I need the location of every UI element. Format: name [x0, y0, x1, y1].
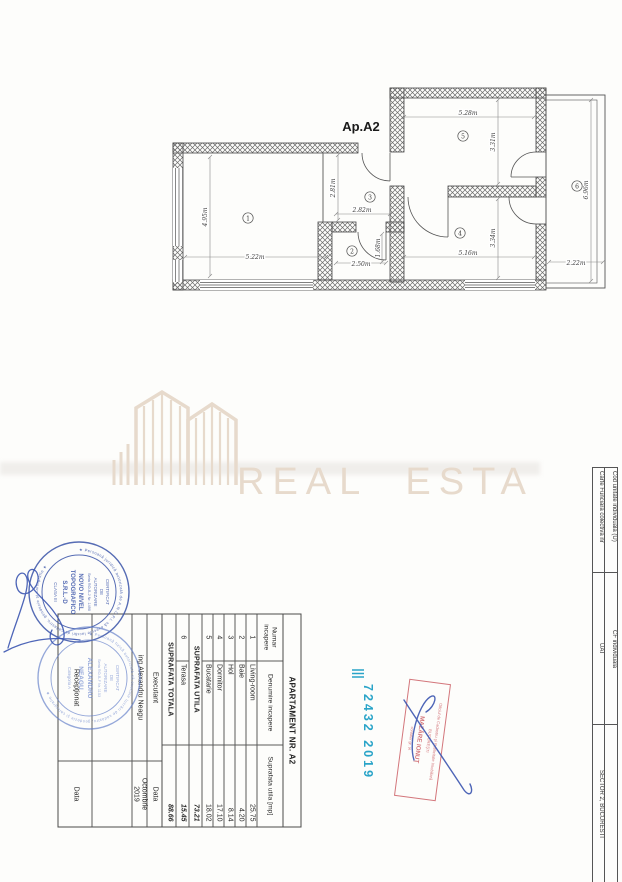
subtotal-row: SUPRAFATA UTILA 73.21 — [188, 614, 201, 826]
subtotal-value: 73.21 — [189, 745, 201, 826]
stamp2-line: AUTORIZARE — [103, 664, 108, 693]
table-row: 3 Hol 8.14 — [223, 614, 234, 826]
cell-area: 8.14 — [224, 745, 234, 826]
registration-prefix-mark — [352, 670, 364, 677]
cell-num: 4 — [213, 614, 223, 661]
table-title: APARTAMENT NR. A2 — [282, 614, 300, 826]
data-label: Data — [147, 761, 161, 826]
cadastral-sidebar: Carte Funciara colectiva nr UAT SECTOR 2… — [592, 467, 618, 882]
empty-sidebar-cell — [605, 725, 617, 882]
dim-dormitor-w: 5.16m — [458, 250, 477, 257]
sector-label: SECTOR 2, BUCURESTI — [593, 725, 604, 882]
col-header-suprafata: Suprafata utila [mp] — [257, 745, 282, 826]
stamp1-line: CERTIFICAT — [105, 579, 110, 605]
table-row: 4 Dormitor 17.10 — [212, 614, 223, 826]
total-label: SUPRAFATA TOTALA — [162, 614, 175, 745]
cell-name: Living-room — [246, 661, 256, 745]
room-4: 4 — [458, 231, 462, 238]
dim-hol-h: 2.81m — [330, 178, 337, 198]
stamp2-line: CERTIFICAT — [115, 665, 120, 691]
cell-num: 6 — [176, 614, 188, 661]
watermark-text: REAL ESTATE — [237, 461, 530, 503]
cell-name: Hol — [224, 661, 234, 745]
date-value: Octombrie 2019 — [131, 772, 147, 816]
apartment-label: Ap.A2 — [342, 119, 380, 134]
subtotal-label: SUPRAFATA UTILA — [189, 614, 201, 745]
red-office-stamp: Oficiul de Cadastru şi Publicitate Imobi… — [370, 655, 500, 835]
cell-area: 25.75 — [246, 745, 256, 826]
table-header-row: Numar incapere Denumire incapere Suprafa… — [256, 614, 282, 826]
cell-num: 1 — [246, 614, 256, 661]
dim-terasa-h: 6.96m — [583, 180, 590, 199]
cell-name: Dormitor — [213, 661, 223, 745]
table-row: 1 Living-room 25.75 — [245, 614, 256, 826]
dim-dormitor-h: 3.34m — [490, 228, 497, 247]
room-3: 3 — [368, 195, 372, 202]
cell-name: Bucatarie — [202, 661, 212, 745]
floor-plan: Ap.A2 — [0, 0, 622, 345]
room-6: 6 — [575, 184, 579, 191]
cell-area: 18.02 — [202, 745, 212, 826]
dim-living-w: 5.22m — [245, 254, 264, 261]
cell-num: 3 — [224, 614, 234, 661]
carte-funciara-label: Carte Funciara colectiva nr — [593, 468, 604, 573]
table-row: 5 Bucatarie 18.02 — [201, 614, 212, 826]
cell-area: 15.45 — [176, 745, 188, 826]
cell-name: Terasa — [176, 661, 188, 745]
stamp2-line: Categoria A — [67, 667, 72, 689]
sidebar-inner-column: Cod unitate individuala (U) CF individua… — [605, 468, 617, 882]
cell-area: 17.10 — [213, 745, 223, 826]
table-row: 2 Baie 4.20 — [234, 614, 245, 826]
col-header-numar: Numar incapere — [257, 614, 282, 661]
cell-num: 2 — [235, 614, 245, 661]
total-row: SUPRAFATA TOTALA 88.66 — [162, 614, 175, 826]
dim-baie-h: 1.68m — [375, 238, 382, 257]
apartment-table: APARTAMENT NR. A2 Numar incapere Denumir… — [161, 613, 301, 827]
dim-bucatarie-h: 3.31m — [490, 132, 497, 151]
realestate-watermark: REAL ESTATE — [100, 372, 530, 507]
building-logo-icon — [114, 392, 236, 485]
dim-baie-w: 2.50m — [350, 261, 370, 268]
terrace-row: 6 Terasa 15.45 — [175, 614, 188, 826]
dim-terasa-w: 2.22m — [565, 260, 585, 267]
dim-hol-w: 2.82m — [351, 207, 371, 214]
sidebar-outer-column: Carte Funciara colectiva nr UAT SECTOR 2… — [593, 468, 605, 882]
total-value: 88.66 — [162, 745, 175, 826]
stamp2-line: DE — [109, 675, 114, 681]
dim-bucatarie-w: 5.28m — [458, 110, 477, 117]
cell-area: 4.20 — [235, 745, 245, 826]
uat-label: UAT — [593, 573, 604, 726]
cell-name: Baie — [235, 661, 245, 745]
dim-living-h: 4.95m — [202, 207, 209, 227]
room-1: 1 — [246, 216, 250, 223]
cf-individuala-label: CF individuala — [605, 573, 617, 726]
room-2: 2 — [350, 249, 354, 256]
doors — [358, 152, 536, 260]
empty-cell — [92, 761, 131, 826]
stamp2-line: NEAGU — [77, 666, 84, 690]
col-header-denumire: Denumire incapere — [257, 661, 282, 745]
cell-num: 5 — [202, 614, 212, 661]
handwritten-signature — [0, 550, 100, 665]
cod-unitate-label: Cod unitate individuala (U) — [605, 468, 617, 573]
receptionat-data-label: Data — [58, 761, 91, 826]
room-5: 5 — [461, 134, 465, 141]
